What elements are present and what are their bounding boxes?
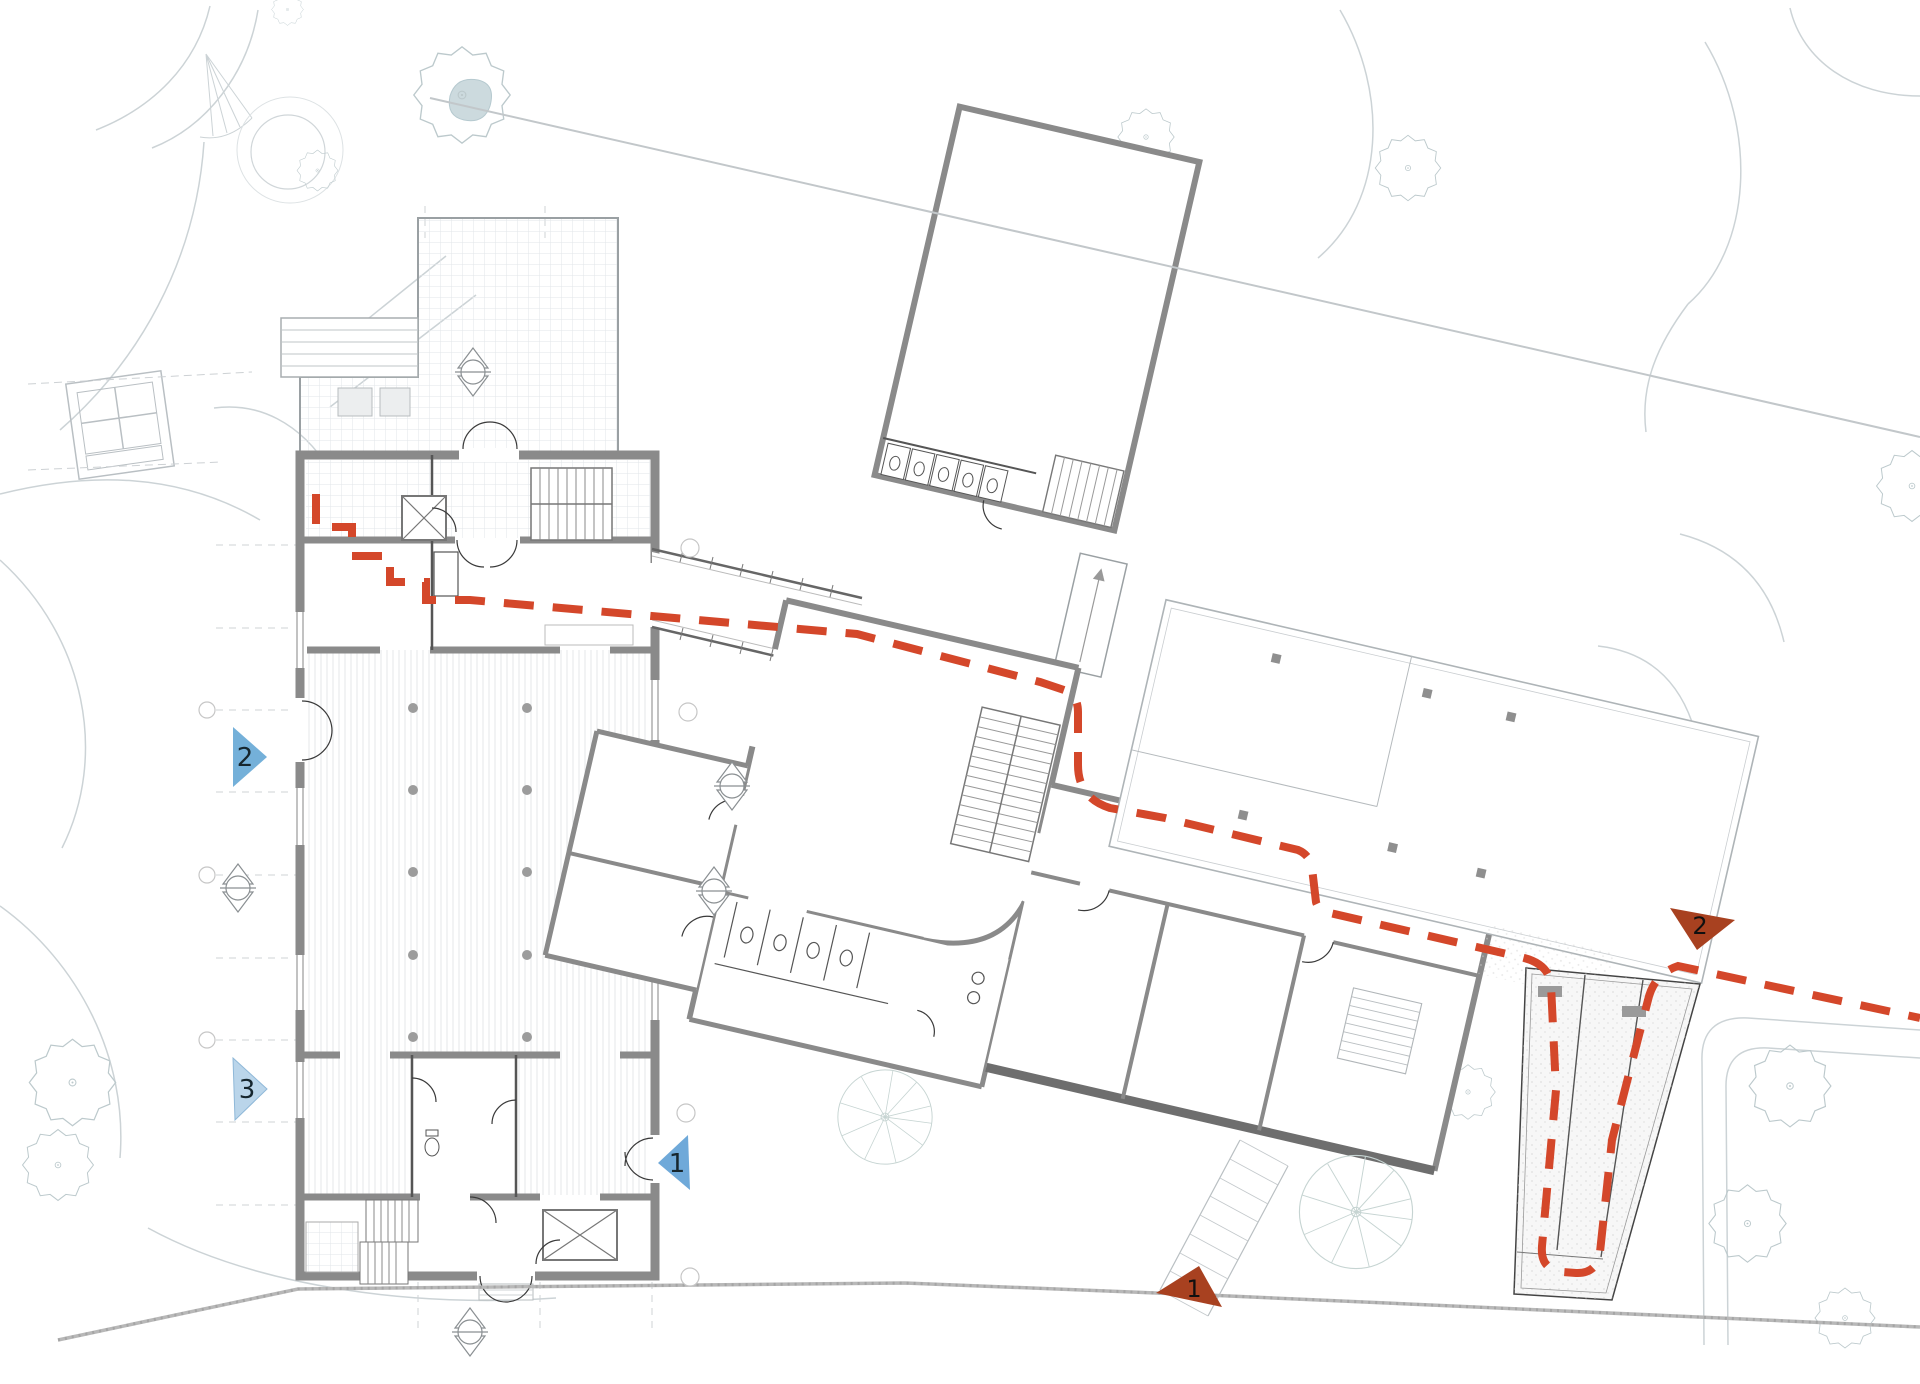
site-boundary-north [430,98,1920,437]
marker-blue-3-label: 3 [239,1075,256,1105]
garden-pond [237,79,492,203]
tree-icon [272,0,304,25]
existing-tree-icon [1299,1155,1412,1268]
tree-icon [297,150,338,191]
tree-icon [414,47,510,143]
marker-red-1: 1 [1156,1266,1222,1307]
site-boundary-south [58,1283,1920,1340]
marker-red-2-label: 2 [1692,912,1707,940]
site-grid-dashes-west [28,372,252,470]
marker-blue-2: 2 [233,727,267,787]
tree-icon [1749,1045,1831,1127]
marker-blue-1-label: 1 [669,1149,686,1179]
garden-pavilion [66,371,174,479]
marker-red-1-label: 1 [1186,1275,1201,1303]
pond-shape [449,79,491,120]
elevator-north-icon [402,496,446,540]
tree-icon [29,1039,115,1125]
marker-blue-1: 1 [658,1135,690,1190]
marker-blue-2-label: 2 [237,743,254,773]
tree-icon [1375,135,1440,200]
tree-icon [1815,1288,1875,1348]
tree-icon [23,1130,94,1201]
existing-tree-icon [838,1070,932,1164]
tree-icon [1709,1185,1786,1262]
stair-north [531,468,612,540]
site-plan-drawing: 2 3 1 1 2 [0,0,1920,1384]
terrace [281,218,618,455]
gym-hall [869,107,1199,554]
elevator-south-icon [543,1210,617,1260]
tree-icon [1877,451,1920,522]
wc-fixture-icon [425,1130,439,1156]
bench [545,625,633,645]
gym-connector [1054,553,1127,677]
site-plan-page: 2 3 1 1 2 [0,0,1920,1384]
marker-blue-3: 3 [233,1058,267,1120]
